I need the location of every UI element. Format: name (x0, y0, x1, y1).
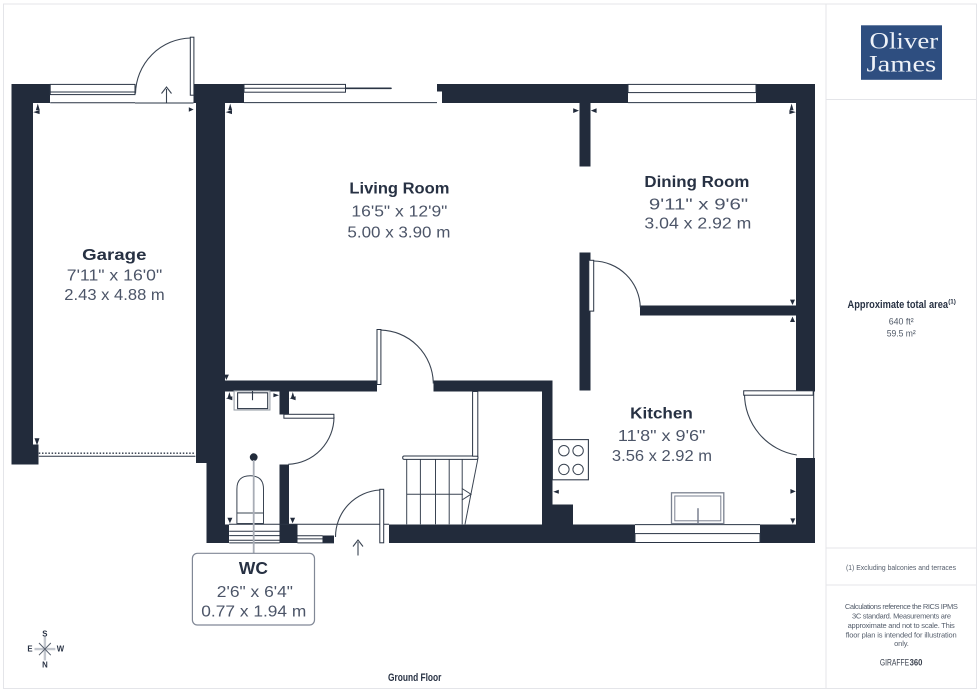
svg-text:16'5" x 12'9": 16'5" x 12'9" (351, 204, 447, 221)
svg-text:(1) Excluding balconies and te: (1) Excluding balconies and terraces (846, 563, 956, 572)
svg-text:only.: only. (894, 639, 909, 648)
svg-text:(1): (1) (948, 299, 956, 306)
svg-text:GIRAFFE: GIRAFFE (880, 658, 909, 668)
svg-text:Garage: Garage (82, 247, 146, 264)
svg-text:Dining Room: Dining Room (644, 174, 749, 191)
svg-text:N: N (42, 661, 48, 670)
svg-text:3.56 x 2.92 m: 3.56 x 2.92 m (612, 448, 712, 465)
svg-text:11'8" x 9'6": 11'8" x 9'6" (618, 428, 706, 445)
svg-text:Ground Floor: Ground Floor (388, 672, 442, 684)
svg-text:James: James (867, 52, 937, 77)
svg-text:S: S (42, 629, 47, 638)
svg-text:9'11" x 9'6": 9'11" x 9'6" (649, 196, 748, 213)
svg-text:360: 360 (910, 658, 923, 668)
svg-text:2.43 x 4.88 m: 2.43 x 4.88 m (64, 287, 164, 304)
svg-text:7'11" x 16'0": 7'11" x 16'0" (67, 267, 163, 284)
svg-text:floor plan is intended for ill: floor plan is intended for illustration (846, 631, 957, 640)
svg-text:Oliver: Oliver (870, 29, 939, 54)
svg-text:640 ft²: 640 ft² (889, 316, 914, 326)
svg-text:Living Room: Living Room (349, 181, 449, 198)
svg-text:Calculations reference the RIC: Calculations reference the RICS IPMS (845, 602, 958, 611)
svg-text:W: W (57, 645, 65, 654)
svg-text:3C standard. Measurements are: 3C standard. Measurements are (852, 612, 951, 621)
svg-text:59.5 m²: 59.5 m² (887, 329, 916, 339)
svg-text:3.04 x 2.92 m: 3.04 x 2.92 m (644, 215, 751, 232)
svg-text:5.00 x 3.90 m: 5.00 x 3.90 m (347, 225, 450, 242)
svg-text:2'6" x 6'4": 2'6" x 6'4" (217, 584, 293, 601)
svg-text:approximate and not to scale.: approximate and not to scale. This (848, 621, 955, 630)
svg-text:WC: WC (239, 558, 268, 578)
svg-text:Kitchen: Kitchen (630, 406, 693, 423)
svg-text:Approximate total area: Approximate total area (848, 299, 949, 311)
svg-text:0.77 x 1.94 m: 0.77 x 1.94 m (201, 604, 306, 621)
svg-text:E: E (27, 645, 32, 654)
